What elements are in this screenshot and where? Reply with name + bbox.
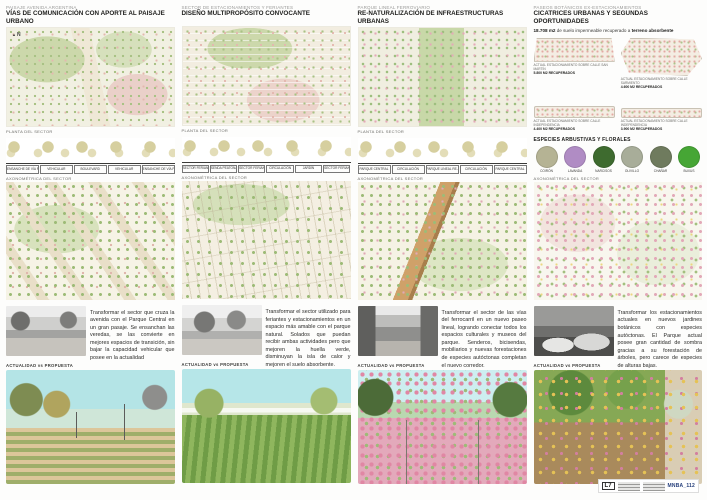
species-row: COIRÓN LAVANDA NARCISOS OLIVILLO CHAÑAR … (534, 146, 703, 174)
presentation-board: PAISAJE AVENIDA ARGENTINA VÍAS DE COMUNI… (0, 0, 707, 500)
axon-caption: AXONOMÉTRICA DEL SECTOR (6, 176, 175, 181)
section-label: PARQUE CENTRAL (358, 165, 391, 173)
lot-area: 3.900 m2 recuperados (621, 127, 702, 131)
axonometric-view (534, 182, 703, 300)
species-photo (564, 146, 586, 168)
site-plan: N (6, 27, 175, 127)
description-text: Transformar los estacionamientos actuale… (618, 306, 703, 360)
lot-area: 5.800 m2 recuperados (534, 71, 615, 75)
site-photo (6, 306, 86, 356)
section-elevation (358, 138, 527, 164)
lot-caption-text: ACTUAL ESTACIONAMIENTO SOBRE CALLE INDEP… (621, 119, 688, 127)
vs-caption: ACTUALIDAD vs PROPUESTA (182, 362, 351, 367)
section-label: JARDÍN (295, 165, 322, 173)
species-item: NARCISOS (591, 146, 617, 174)
lot-plan-shape (534, 38, 615, 62)
section-label-row: ENSANCHE DE VÍA PEATONAL VEHICULAR BOULE… (6, 165, 175, 173)
species-item: LAVANDA (562, 146, 588, 174)
proposal-render (6, 370, 175, 484)
section-label: SENDA PEATONAL (210, 165, 237, 173)
species-photo (678, 146, 700, 168)
recovered-area-stat: 18.708 m2 de suelo impermeable recuperad… (534, 28, 703, 34)
species-name: LAVANDA (562, 170, 588, 174)
axonometric-view (358, 182, 527, 300)
plan-caption: PLANTA DEL SECTOR (6, 129, 175, 134)
section-label: SECTOR FERIANTES (238, 165, 265, 173)
lot-plan-shape (621, 38, 702, 76)
site-plan (358, 27, 527, 127)
species-name: CHAÑAR (648, 170, 674, 174)
stat-area-value: 18.708 m2 (534, 28, 556, 33)
column-ferroviario: PARQUE LINEAL FERROVIARIO RE-NATURALIZAC… (358, 5, 527, 500)
column-botanicos: PASEOS BOTÁNICOS EX-ESTACIONAMIENTOS CIC… (534, 5, 703, 500)
current-state-row: Transformar el sector utilizado para fer… (182, 305, 351, 359)
vs-caption: ACTUALIDAD vs PROPUESTA (6, 363, 175, 368)
species-photo (536, 146, 558, 168)
site-photo (182, 305, 262, 355)
species-name: OLIVILLO (619, 170, 645, 174)
stat-mid-text: de suelo impermeable recuperado a (557, 28, 631, 33)
current-state-row: Transformar los estacionamientos actuale… (534, 306, 703, 360)
section-elevation (182, 137, 351, 163)
axon-caption: AXONOMÉTRICA DEL SECTOR (182, 175, 351, 180)
site-photo (534, 306, 614, 356)
column-title: VÍAS DE COMUNICACIÓN CON APORTE AL PAISA… (6, 10, 175, 24)
site-photo (358, 306, 438, 356)
lot-caption: ACTUAL ESTACIONAMIENTO SOBRE CALLE SAN M… (534, 63, 615, 75)
plan-caption: PLANTA DEL SECTOR (182, 128, 351, 133)
column-title: RE-NATURALIZACIÓN DE INFRAESTRUCTURAS UR… (358, 10, 527, 24)
section-label: VEHICULAR (108, 165, 141, 173)
section-label: PARQUE CENTRAL (494, 165, 527, 173)
sheet-number: L7 (602, 482, 615, 490)
proposal-render (182, 369, 351, 483)
column-title: DISEÑO MULTIPROPÓSITO CONVOCANTE (182, 10, 351, 24)
axon-caption: AXONOMÉTRICA DEL SECTOR (534, 176, 703, 181)
section-label: SECTOR FERIANTES (323, 165, 350, 173)
north-arrow-icon: N (12, 32, 21, 38)
section-label: VEHICULAR (40, 165, 73, 173)
title-block: L7 MNBA_112 (598, 479, 699, 493)
description-text: Transformar el sector de las vías del fe… (442, 306, 527, 360)
lot-item: ACTUAL ESTACIONAMIENTO SOBRE CALLE SAN M… (534, 38, 615, 90)
species-item: COIRÓN (534, 146, 560, 174)
current-state-row: Transformar el sector que cruza la aveni… (6, 306, 175, 360)
section-label: SECTOR FERIANTES (182, 165, 209, 173)
species-name: BUXUS (676, 170, 702, 174)
lot-item: ACTUAL ESTACIONAMIENTO SOBRE CALLE INDEP… (534, 94, 615, 132)
stat-bold-text: terreno absorbente (632, 28, 674, 33)
column-title: CICATRICES URBANAS Y SEGUNDAS OPORTUNIDA… (534, 10, 703, 24)
section-elevation (6, 138, 175, 164)
lot-plan-shape (534, 106, 615, 118)
section-label: BOULEVARD (74, 165, 107, 173)
vs-caption: ACTUALIDAD vs PROPUESTA (358, 363, 527, 368)
partner-logo-1-icon (618, 482, 640, 491)
section-label: ENSANCHE DE VÍA PEATONAL (142, 165, 175, 173)
lot-caption: ACTUAL ESTACIONAMIENTO SOBRE CALLE INDEP… (621, 119, 702, 131)
section-label: PARQUE LINEAL RE-NATURALIZADO (426, 165, 459, 173)
species-name: COIRÓN (534, 170, 560, 174)
species-item: CHAÑAR (648, 146, 674, 174)
section-label: ENSANCHE DE VÍA PEATONAL (6, 165, 39, 173)
lot-area: 4.600 m2 recuperados (621, 85, 702, 89)
lot-caption-text: ACTUAL ESTACIONAMIENTO SOBRE CALLE SARMI… (621, 77, 688, 85)
species-item: BUXUS (676, 146, 702, 174)
species-item: OLIVILLO (619, 146, 645, 174)
lot-item: ACTUAL ESTACIONAMIENTO SOBRE CALLE SARMI… (621, 38, 702, 90)
description-text: Transformar el sector que cruza la aveni… (90, 306, 175, 360)
section-label: CIRCULACIÓN (266, 165, 293, 173)
axon-caption: AXONOMÉTRICA DEL SECTOR (358, 176, 527, 181)
column-feriantes: SECTOR DE ESTACIONAMIENTOS Y FERIANTES D… (182, 5, 351, 500)
parking-lot-plans: ACTUAL ESTACIONAMIENTO SOBRE CALLE SAN M… (534, 38, 703, 132)
plan-caption: PLANTA DEL SECTOR (358, 129, 527, 134)
description-text: Transformar el sector utilizado para fer… (266, 305, 351, 359)
section-label: CIRCULACIÓN (392, 165, 425, 173)
species-name: NARCISOS (591, 170, 617, 174)
lot-item: ACTUAL ESTACIONAMIENTO SOBRE CALLE INDEP… (621, 94, 702, 132)
species-photo (650, 146, 672, 168)
section-label-row: SECTOR FERIANTES SENDA PEATONAL SECTOR F… (182, 165, 351, 173)
axonometric-view (182, 181, 351, 299)
species-photo (621, 146, 643, 168)
section-label-row: PARQUE CENTRAL CIRCULACIÓN PARQUE LINEAL… (358, 165, 527, 173)
species-photo (593, 146, 615, 168)
species-title: ESPECIES ARBUSTIVAS Y FLORALES (534, 137, 703, 143)
current-state-row: Transformar el sector de las vías del fe… (358, 306, 527, 360)
lot-plan-shape (621, 108, 702, 118)
lot-caption-text: ACTUAL ESTACIONAMIENTO SOBRE CALLE INDEP… (534, 119, 601, 127)
lot-caption: ACTUAL ESTACIONAMIENTO SOBRE CALLE INDEP… (534, 119, 615, 131)
lot-area: 4.400 m2 recuperados (534, 127, 615, 131)
site-plan (182, 26, 351, 126)
column-avenida: PAISAJE AVENIDA ARGENTINA VÍAS DE COMUNI… (6, 5, 175, 500)
partner-logo-2-icon (643, 482, 665, 491)
lot-caption-text: ACTUAL ESTACIONAMIENTO SOBRE CALLE SAN M… (534, 63, 608, 71)
entry-code: MNBA_112 (668, 483, 695, 489)
lot-caption: ACTUAL ESTACIONAMIENTO SOBRE CALLE SARMI… (621, 77, 702, 89)
section-label: CIRCULACIÓN (460, 165, 493, 173)
axonometric-view (6, 182, 175, 300)
proposal-render (358, 370, 527, 484)
proposal-render (534, 370, 703, 484)
vs-caption: ACTUALIDAD vs PROPUESTA (534, 363, 703, 368)
